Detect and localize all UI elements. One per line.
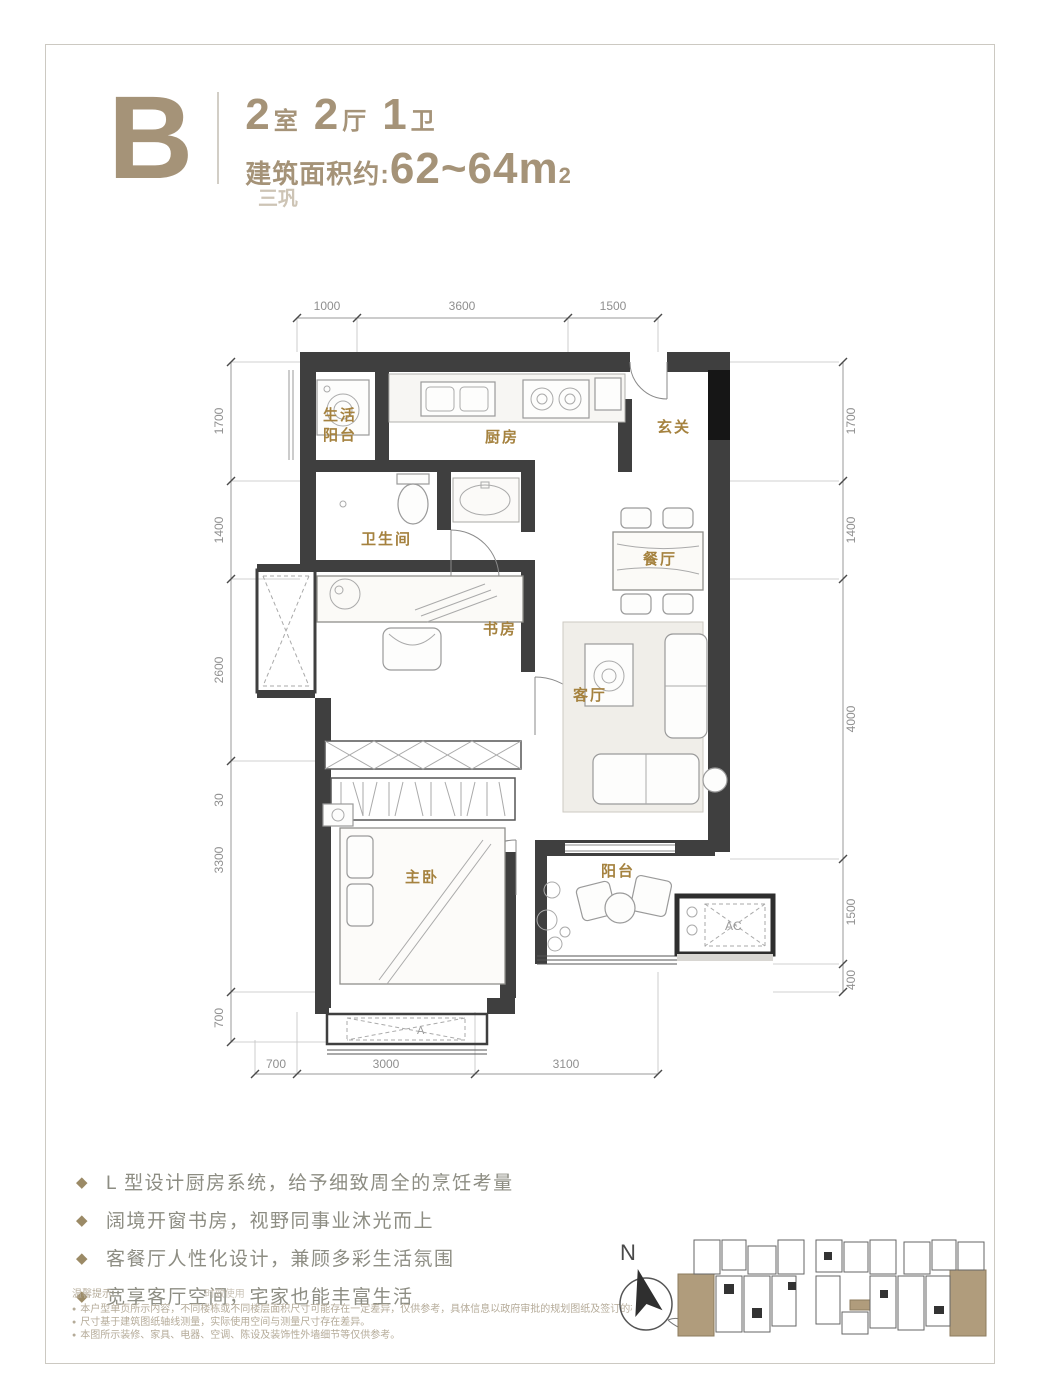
dim-left-30: 30 [212, 793, 226, 807]
disclaimer-item: 本户型单页所示内容，不同楼栋或不同楼层面积尺寸可能存在一定差异，仅供参考，具体信… [72, 1303, 632, 1316]
balcony-set [537, 875, 672, 951]
dim-top-1500: 1500 [600, 299, 627, 313]
feature-text: 阔境开窗书房，视野同事业沐光而上 [106, 1206, 434, 1233]
unit-letter: B [108, 88, 193, 188]
compass-n-label: N [620, 1240, 636, 1265]
room-foyer: 玄关 [657, 418, 691, 436]
dim-top-3600: 3600 [449, 299, 476, 313]
north-compass-icon: N [620, 1240, 686, 1330]
dim-left-700: 700 [212, 1008, 226, 1028]
header: B 2室 2厅 1卫 建筑面积约: 62~64m 2 [108, 88, 571, 194]
dim-bottom-3100: 3100 [553, 1057, 580, 1071]
halls-count: 2 [314, 90, 338, 140]
wardrobe-hatch [325, 741, 521, 769]
dim-left-1400: 1400 [212, 516, 226, 543]
room-living: 客厅 [572, 686, 607, 704]
disclaimer-title: 温馨提示: [72, 1288, 115, 1301]
bay-window-bedroom: A [347, 1018, 465, 1040]
rooms-count: 2 [245, 90, 269, 140]
living-room-set [563, 622, 727, 812]
feature-text: 客餐厅人性化设计，兼顾多彩生活氛围 [106, 1244, 455, 1271]
baths-count: 1 [382, 90, 406, 140]
kitchen-counter [389, 374, 625, 422]
diamond-bullet-icon: ◆ [76, 1211, 106, 1229]
dim-left-2600: 2600 [212, 656, 226, 683]
feature-text: L 型设计厨房系统，给予细致周全的烹饪考量 [106, 1168, 514, 1195]
shower-drain [340, 501, 346, 507]
room-bathroom: 卫生间 [361, 530, 412, 548]
room-kitchen: 厨房 [485, 428, 519, 446]
bay-window-study [263, 576, 309, 686]
disclaimer: 温馨提示: 时效使用 本户型单页所示内容，不同楼栋或不同楼层面积尺寸可能存在一定… [72, 1288, 632, 1342]
header-watermark: 三巩 [258, 182, 298, 211]
baths-unit: 卫 [411, 101, 435, 136]
rooms-unit: 室 [274, 101, 298, 136]
site-key-plan-area: N [598, 1212, 1008, 1362]
area-superscript: 2 [559, 163, 571, 189]
header-divider [217, 92, 219, 184]
bay-mark-label: A [417, 1025, 425, 1037]
dim-left-3300: 3300 [212, 846, 226, 873]
layout-summary: 2室 2厅 1卫 [245, 90, 571, 140]
ac-unit: AC [677, 896, 773, 961]
toilet-icon [397, 474, 429, 524]
washbasin-icon [453, 478, 519, 522]
bed-icon [323, 804, 505, 984]
feature-item: ◆ 客餐厅人性化设计，兼顾多彩生活氛围 [76, 1244, 514, 1271]
dim-right-1700: 1700 [844, 407, 858, 434]
room-dining: 餐厅 [643, 550, 677, 568]
floor-plan: 1000 3600 1500 700 3000 3100 1700 1400 2… [165, 292, 905, 1102]
halls-unit: 厅 [342, 101, 366, 136]
dim-bottom-700: 700 [266, 1057, 286, 1071]
room-balcony: 阳台 [601, 862, 635, 880]
room-life-balcony-l2: 阳台 [323, 426, 357, 444]
feature-item: ◆ 阔境开窗书房，视野同事业沐光而上 [76, 1206, 514, 1233]
furniture: A AC [263, 374, 773, 1040]
floorplan-page: { "header": { "unit_letter": "B", "rooms… [0, 0, 1039, 1400]
dim-right-1400: 1400 [844, 516, 858, 543]
closet-clothes [331, 778, 515, 820]
feature-item: ◆ L 型设计厨房系统，给予细致周全的烹饪考量 [76, 1168, 514, 1195]
dim-right-400: 400 [844, 970, 858, 990]
diamond-bullet-icon: ◆ [76, 1173, 106, 1191]
disclaimer-watermark: 时效使用 [205, 1288, 245, 1301]
ac-label: AC [725, 919, 742, 933]
site-plan-thumbnail [678, 1240, 986, 1336]
disclaimer-item: 尺寸基于建筑图纸轴线测量，实际使用空间与测量尺寸存在差异。 [72, 1316, 632, 1329]
diamond-bullet-icon: ◆ [76, 1249, 106, 1267]
dim-right-1500: 1500 [844, 898, 858, 925]
room-life-balcony-l1: 生活 [323, 406, 357, 424]
dim-left-1700: 1700 [212, 407, 226, 434]
disclaimer-item: 本图所示装修、家具、电器、空调、陈设及装饰性外墙细节等仅供参考。 [72, 1329, 632, 1342]
area-value: 62~64m [390, 144, 559, 194]
dim-bottom-3000: 3000 [373, 1057, 400, 1071]
room-master: 主卧 [405, 868, 439, 886]
room-study: 书房 [483, 620, 517, 638]
dim-top-1000: 1000 [314, 299, 341, 313]
dim-right-4000: 4000 [844, 705, 858, 732]
